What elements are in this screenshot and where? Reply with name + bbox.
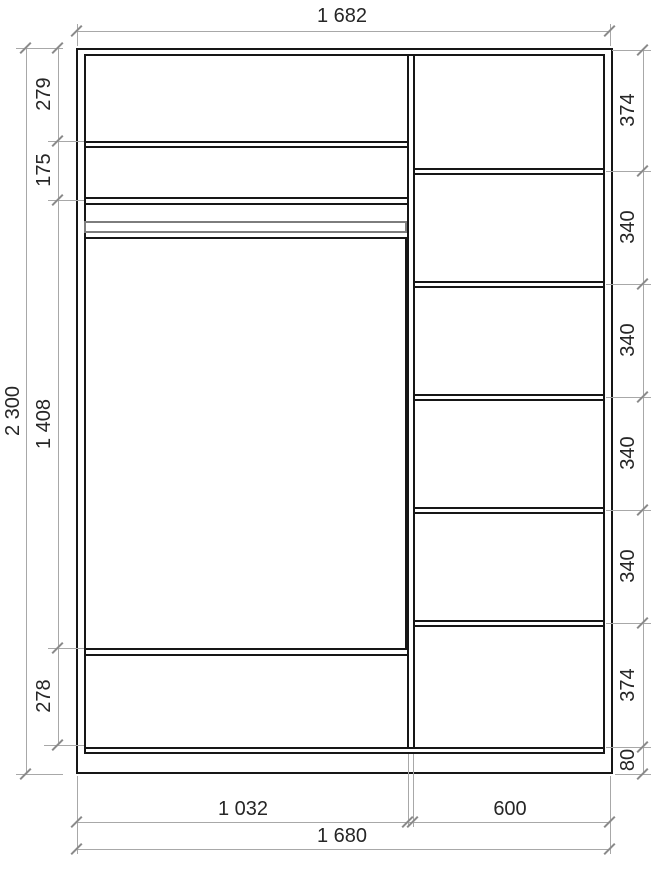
shelf-line xyxy=(415,286,603,288)
shelf-line xyxy=(84,197,407,199)
shelf-line xyxy=(415,399,603,401)
extension-line xyxy=(606,747,651,748)
dim-label-left-segment: 1 408 xyxy=(34,399,54,449)
dimension-line-left-overall xyxy=(26,48,27,774)
extension-line xyxy=(612,50,651,51)
extension-line xyxy=(44,745,84,746)
dim-label-right-segment: 80 xyxy=(618,749,638,771)
technical-drawing: 1 682 2 300 279 175 1 408 278 374 340 34… xyxy=(0,0,670,874)
dimension-line-top xyxy=(77,31,610,32)
bottom-panel-line xyxy=(84,752,605,754)
extension-line xyxy=(610,776,611,854)
extension-line xyxy=(606,623,651,624)
dim-label-right-segment: 374 xyxy=(618,93,638,126)
center-divider-line xyxy=(407,54,409,747)
shelf-line xyxy=(415,507,603,509)
dimension-line-bottom-overall xyxy=(77,849,610,850)
dimension-line-left-segments xyxy=(58,48,59,745)
dimension-line-bottom-inner xyxy=(77,822,610,823)
dim-label-right-segment: 340 xyxy=(618,323,638,356)
bottom-panel-line xyxy=(84,747,605,749)
dim-label-right-segment: 374 xyxy=(618,668,638,701)
shelf-line xyxy=(415,625,603,627)
shelf-line xyxy=(415,168,603,170)
right-wall-inner-line xyxy=(603,54,605,753)
extension-line xyxy=(77,776,78,854)
clothes-rail xyxy=(84,221,407,233)
shelf-line xyxy=(84,146,407,148)
extension-line xyxy=(606,171,651,172)
extension-line xyxy=(606,284,651,285)
extension-line xyxy=(606,397,651,398)
dim-label-right-segment: 340 xyxy=(618,549,638,582)
shelf-line xyxy=(415,394,603,396)
shelf-line xyxy=(415,281,603,283)
dim-label-left-segment: 175 xyxy=(34,153,54,186)
dim-label-right-segment: 340 xyxy=(618,436,638,469)
shelf-line xyxy=(415,173,603,175)
shelf-line xyxy=(84,203,407,205)
shelf-line xyxy=(84,654,407,656)
shelf-line xyxy=(415,512,603,514)
dim-label-overall-width: 1 682 xyxy=(317,6,367,26)
top-panel-inner-line xyxy=(84,54,605,56)
dim-label-bottom-segment: 600 xyxy=(493,799,526,819)
dim-label-overall-height: 2 300 xyxy=(3,386,23,436)
shelf-line xyxy=(84,141,407,143)
dim-label-left-segment: 279 xyxy=(34,77,54,110)
dim-label-bottom-segment: 1 032 xyxy=(218,799,268,819)
dim-label-left-segment: 278 xyxy=(34,679,54,712)
shelf-line xyxy=(415,620,603,622)
hanging-section-panel xyxy=(84,237,407,650)
extension-line xyxy=(606,510,651,511)
extension-line xyxy=(615,774,651,775)
dim-label-right-segment: 340 xyxy=(618,210,638,243)
dimension-line-right-segments xyxy=(643,50,644,774)
dim-label-bottom-overall: 1 680 xyxy=(317,826,367,846)
extension-line xyxy=(408,754,409,827)
